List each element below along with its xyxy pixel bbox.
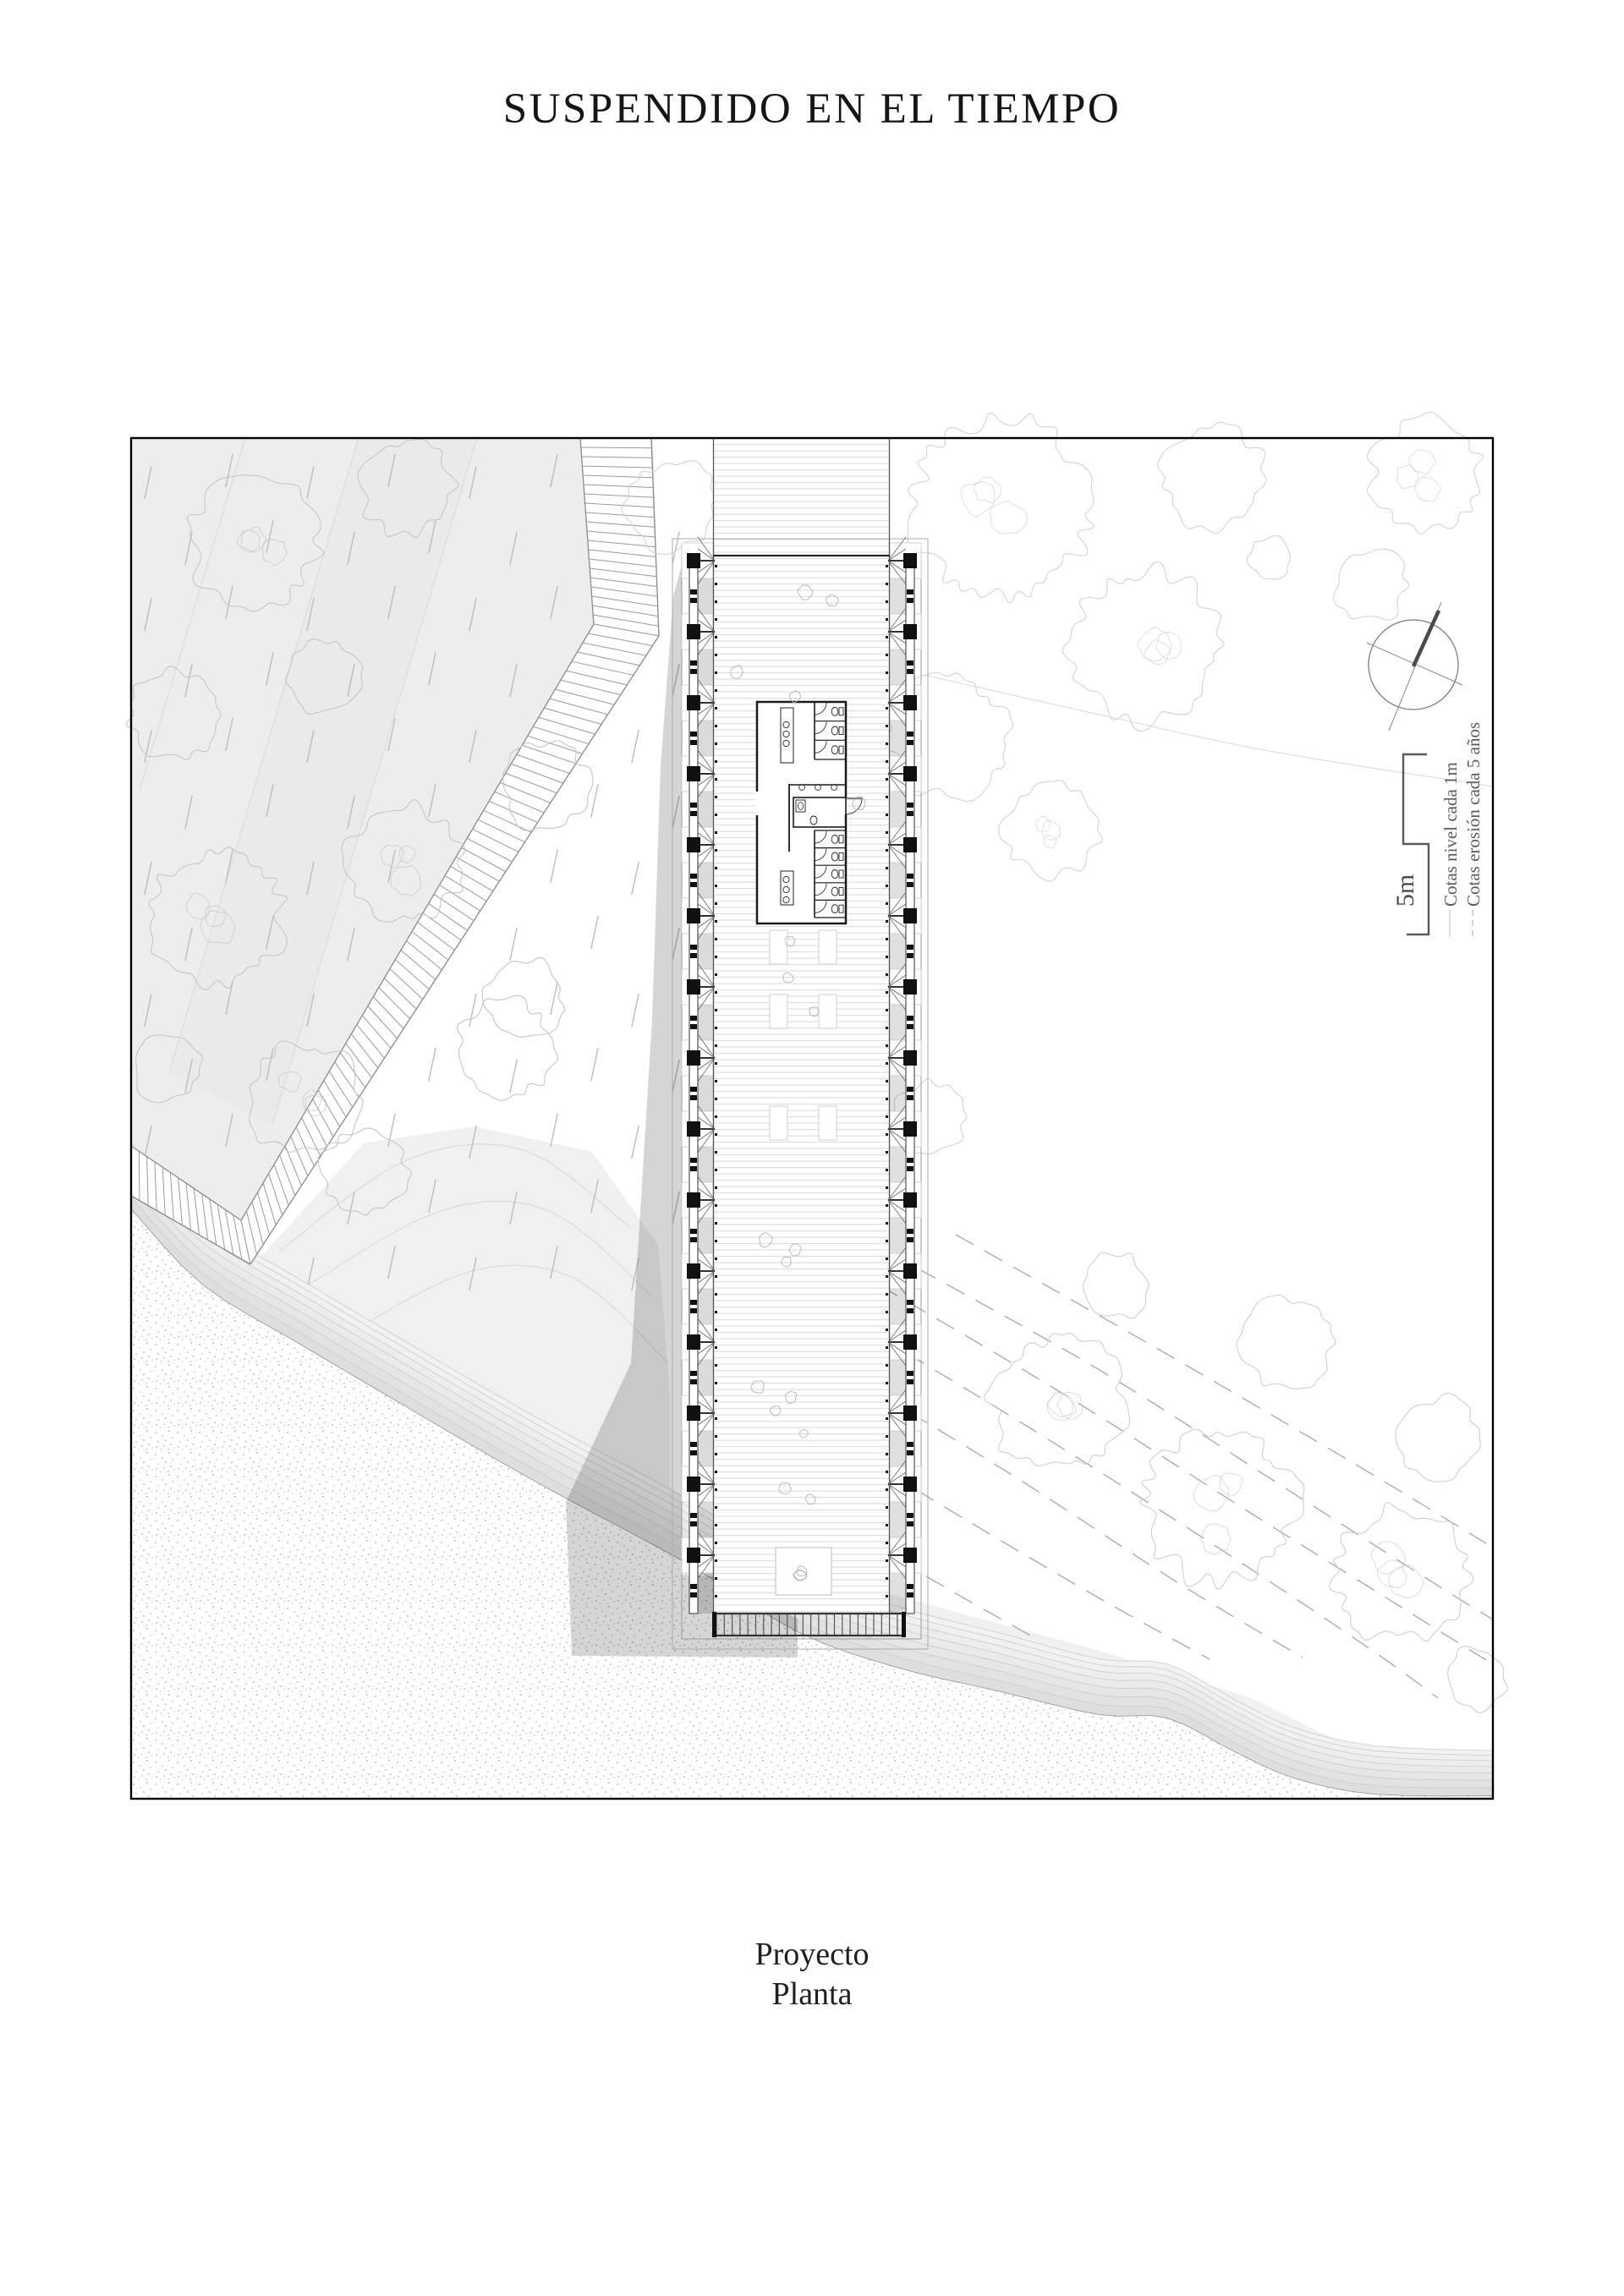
erosion-contour xyxy=(918,1269,1493,1619)
column-post xyxy=(903,1548,917,1563)
north-compass-icon xyxy=(1367,602,1462,731)
column-post xyxy=(687,1548,700,1563)
deck-lounger xyxy=(819,1106,837,1140)
erosion-contour xyxy=(956,1235,1493,1548)
column-post xyxy=(903,1477,917,1492)
legend-erosion-label: Cotas erosión cada 5 años xyxy=(1463,722,1484,907)
caption-plan: Planta xyxy=(0,1975,1624,2014)
column-post xyxy=(687,766,700,781)
column-post xyxy=(903,766,917,781)
column-post xyxy=(687,837,700,852)
column-post xyxy=(687,1477,700,1492)
column-post xyxy=(903,1263,917,1279)
column-post xyxy=(903,1406,917,1421)
column-post xyxy=(903,1192,917,1208)
column-post xyxy=(903,979,917,995)
column-post xyxy=(687,553,700,568)
drawing-sheet: SUSPENDIDO EN EL TIEMPO 5m xyxy=(0,0,1624,2296)
column-post xyxy=(687,1121,700,1137)
boardwalk xyxy=(713,438,890,556)
column-post xyxy=(687,624,700,639)
legend-line-samples xyxy=(1450,910,1473,937)
deck-lounger xyxy=(770,1106,787,1140)
tree-canopy xyxy=(1062,562,1224,731)
column-post xyxy=(687,1050,700,1066)
column-post xyxy=(687,1192,700,1208)
tree-canopy xyxy=(1448,1647,1508,1713)
column-post xyxy=(903,624,917,639)
column-post xyxy=(903,1334,917,1350)
tree-canopy xyxy=(908,413,1094,603)
tree-canopy xyxy=(1330,1503,1473,1641)
caption-project: Proyecto xyxy=(0,1935,1624,1975)
column-post xyxy=(903,1050,917,1066)
column-post xyxy=(903,553,917,568)
deck-lounger xyxy=(770,930,787,964)
column-post xyxy=(687,1334,700,1350)
service-core xyxy=(755,702,862,923)
building-plan xyxy=(672,438,928,1649)
column-post xyxy=(903,1121,917,1137)
column-post xyxy=(903,837,917,852)
column-post xyxy=(903,908,917,923)
deck-lounger xyxy=(819,995,837,1028)
tree-canopy xyxy=(999,781,1103,881)
scale-label: 5m xyxy=(1391,874,1419,907)
tree-canopy xyxy=(984,1334,1129,1466)
column-post xyxy=(687,695,700,710)
tree-canopy xyxy=(1237,1295,1336,1389)
column-post xyxy=(903,695,917,710)
tree-canopy xyxy=(1140,1429,1304,1589)
tree-canopy xyxy=(1334,549,1409,620)
column-post xyxy=(687,1406,700,1421)
tree-canopy xyxy=(1083,1252,1149,1318)
legend-level-label: Cotas nivel cada 1m xyxy=(1440,762,1461,907)
column-post xyxy=(687,1263,700,1279)
column-post xyxy=(687,908,700,923)
column-post xyxy=(687,979,700,995)
tree-canopy xyxy=(1396,1394,1480,1482)
sheet-caption: Proyecto Planta xyxy=(0,1935,1624,2014)
tree-canopy xyxy=(1367,413,1483,534)
deck-lounger xyxy=(819,930,837,964)
deck-lounger xyxy=(770,995,787,1028)
erosion-contour xyxy=(880,1285,1493,1664)
tree-canopy xyxy=(1247,535,1290,578)
